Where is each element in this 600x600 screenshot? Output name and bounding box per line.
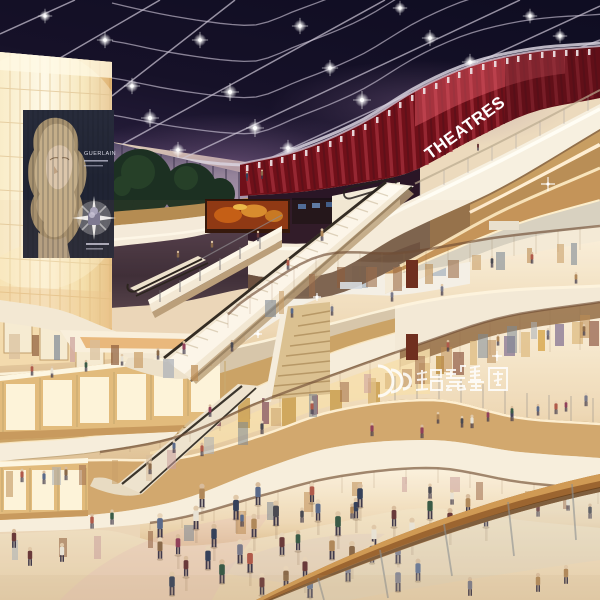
svg-text:GUERLAIN: GUERLAIN	[84, 151, 116, 157]
